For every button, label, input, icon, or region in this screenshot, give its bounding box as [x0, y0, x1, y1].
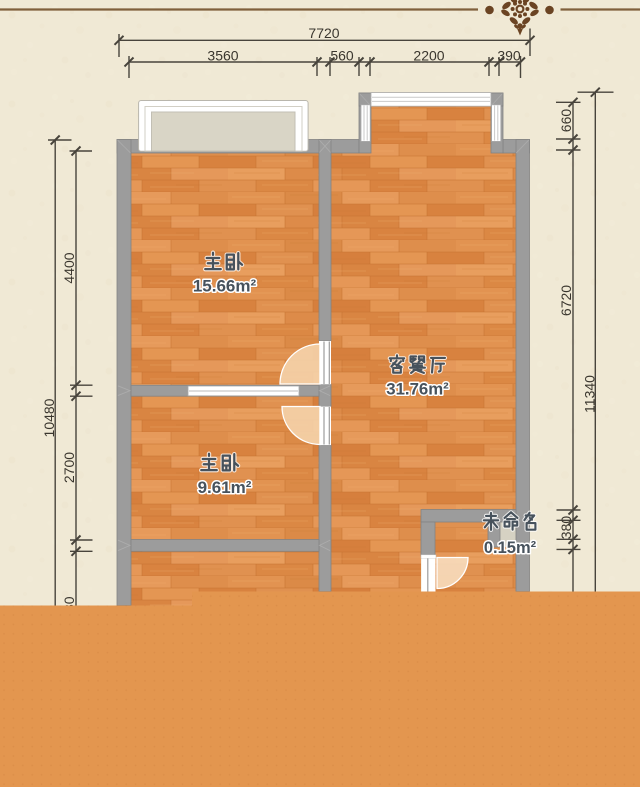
svg-text:3560: 3560 — [207, 48, 238, 64]
svg-text:11340: 11340 — [581, 375, 597, 413]
svg-text:6720: 6720 — [558, 285, 574, 316]
svg-text:390: 390 — [497, 48, 521, 64]
svg-text:4400: 4400 — [61, 252, 77, 283]
svg-text:31.76m²: 31.76m² — [386, 380, 449, 399]
svg-text:2700: 2700 — [61, 452, 77, 483]
svg-text:9.61m²: 9.61m² — [198, 478, 252, 497]
svg-text:380: 380 — [558, 516, 574, 540]
svg-text:2200: 2200 — [413, 48, 444, 64]
svg-text:10480: 10480 — [41, 398, 57, 437]
svg-text:0.15m²: 0.15m² — [484, 539, 537, 557]
svg-text:15.66m²: 15.66m² — [193, 277, 257, 296]
svg-text:7720: 7720 — [308, 25, 339, 41]
svg-text:660: 660 — [558, 109, 574, 133]
svg-text:560: 560 — [330, 48, 354, 64]
